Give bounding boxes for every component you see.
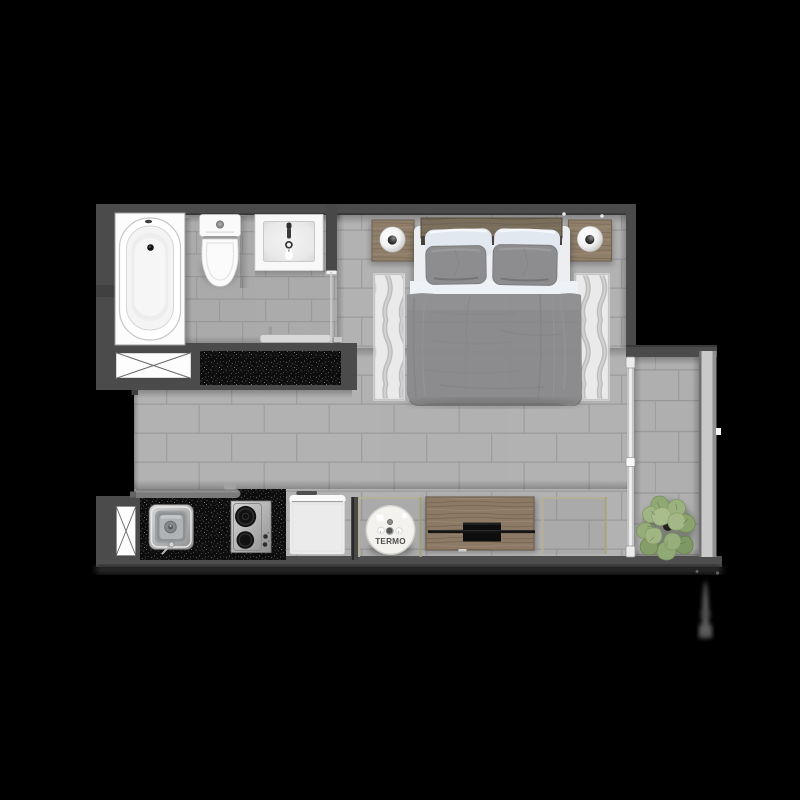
svg-text:TERMO: TERMO: [375, 537, 406, 546]
